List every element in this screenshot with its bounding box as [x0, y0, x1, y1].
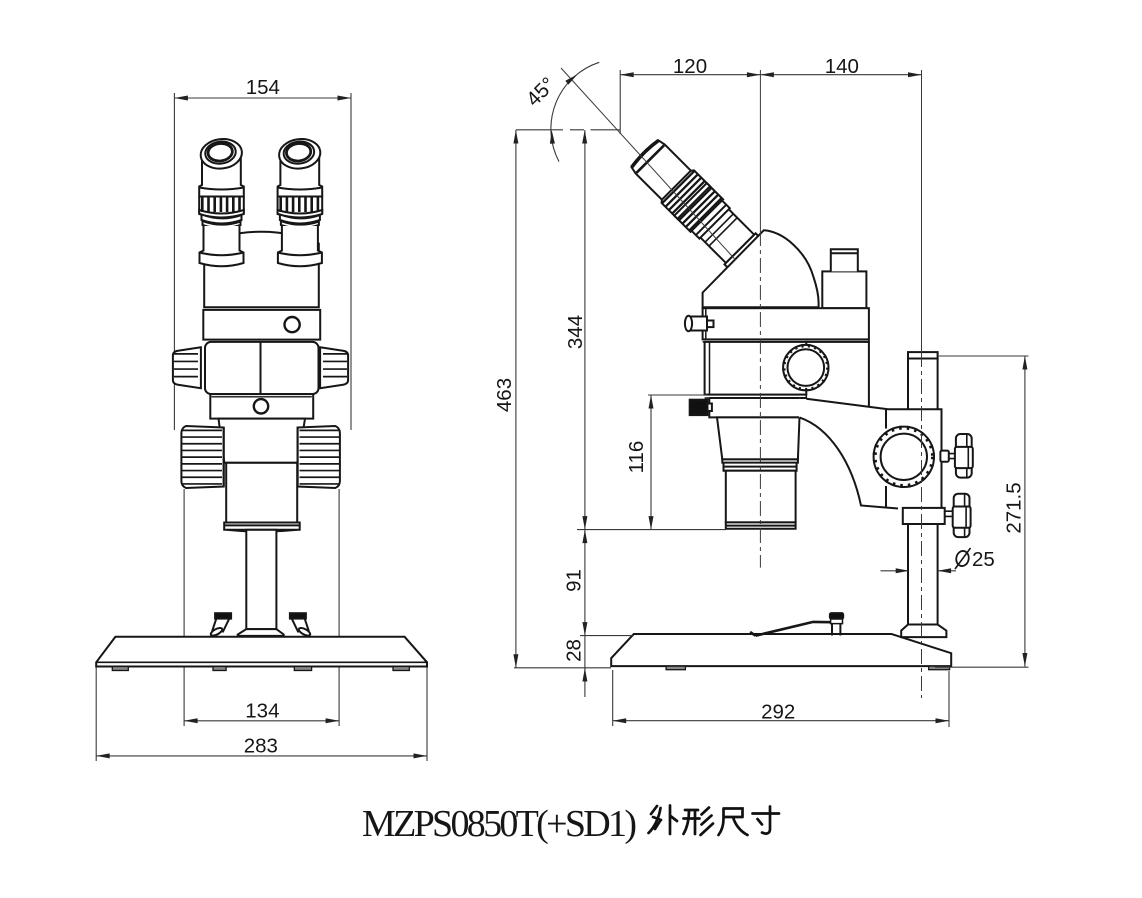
svg-text:154: 154	[246, 76, 280, 99]
svg-text:25: 25	[972, 548, 995, 571]
svg-text:140: 140	[825, 55, 859, 78]
svg-text:292: 292	[761, 701, 795, 724]
svg-text:463: 463	[493, 378, 516, 412]
svg-text:120: 120	[673, 55, 707, 78]
svg-text:91: 91	[563, 569, 586, 592]
svg-text:344: 344	[564, 315, 587, 349]
svg-text:MZPS0850T(+SD1): MZPS0850T(+SD1)	[362, 803, 637, 845]
svg-text:134: 134	[245, 700, 279, 723]
svg-text:271.5: 271.5	[1003, 482, 1026, 533]
svg-text:28: 28	[563, 639, 586, 662]
svg-text:116: 116	[625, 441, 648, 474]
svg-text:283: 283	[244, 735, 278, 758]
